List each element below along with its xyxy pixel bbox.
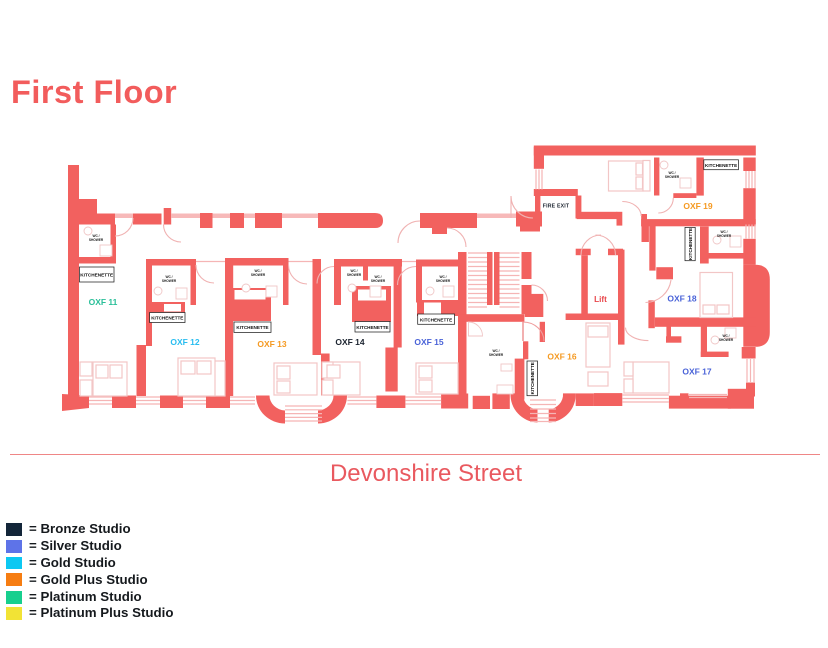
- svg-text:FIRE EXIT: FIRE EXIT: [543, 204, 570, 210]
- svg-text:SHOWER: SHOWER: [347, 273, 362, 277]
- svg-text:KITCHENETTE: KITCHENETTE: [420, 317, 452, 322]
- svg-text:KITCHENETTE: KITCHENETTE: [80, 273, 113, 278]
- svg-text:SHOWER: SHOWER: [89, 238, 104, 242]
- svg-text:SHOWER: SHOWER: [719, 338, 734, 342]
- svg-text:KITCHENETTE: KITCHENETTE: [688, 228, 693, 260]
- svg-text:SHOWER: SHOWER: [162, 279, 177, 283]
- svg-text:SHOWER: SHOWER: [665, 175, 680, 179]
- svg-text:KITCHENETTE: KITCHENETTE: [151, 316, 183, 321]
- svg-text:OXF 16: OXF 16: [547, 352, 577, 362]
- svg-text:SHOWER: SHOWER: [371, 279, 386, 283]
- svg-text:OXF 14: OXF 14: [335, 337, 365, 347]
- svg-text:Lift: Lift: [594, 295, 607, 304]
- svg-text:SHOWER: SHOWER: [489, 353, 504, 357]
- svg-text:SHOWER: SHOWER: [436, 279, 451, 283]
- svg-text:KITCHENETTE: KITCHENETTE: [705, 163, 737, 168]
- svg-text:OXF 13: OXF 13: [257, 339, 287, 349]
- svg-text:OXF 19: OXF 19: [683, 201, 713, 211]
- svg-text:OXF 18: OXF 18: [667, 294, 697, 304]
- svg-text:OXF 11: OXF 11: [89, 297, 118, 307]
- svg-text:OXF 12: OXF 12: [170, 337, 200, 347]
- svg-text:OXF 15: OXF 15: [414, 337, 444, 347]
- svg-text:KITCHENETTE: KITCHENETTE: [530, 362, 535, 394]
- svg-text:KITCHENETTE: KITCHENETTE: [356, 325, 388, 330]
- svg-text:SHOWER: SHOWER: [251, 273, 266, 277]
- svg-text:OXF 17: OXF 17: [682, 367, 712, 377]
- svg-text:SHOWER: SHOWER: [717, 234, 732, 238]
- svg-text:KITCHENETTE: KITCHENETTE: [236, 325, 268, 330]
